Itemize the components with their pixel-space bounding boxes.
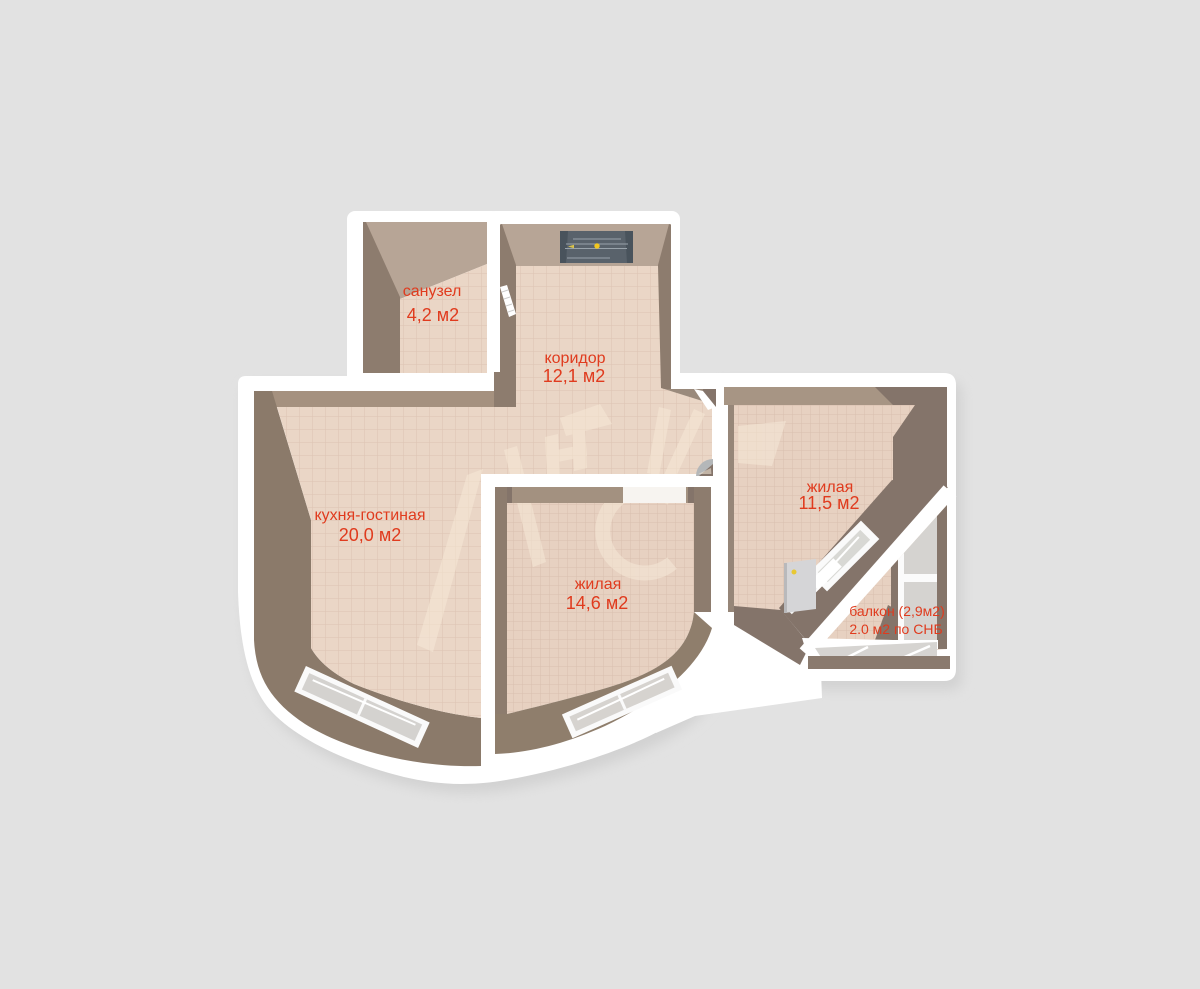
- svg-text:4,2 м2: 4,2 м2: [407, 305, 459, 325]
- svg-text:20,0 м2: 20,0 м2: [339, 525, 401, 545]
- svg-text:11,5 м2: 11,5 м2: [798, 493, 859, 513]
- svg-text:балкон (2,9м2): балкон (2,9м2): [849, 603, 945, 619]
- svg-text:жилая: жилая: [575, 576, 622, 593]
- svg-text:14,6 м2: 14,6 м2: [566, 593, 628, 613]
- svg-text:12,1 м2: 12,1 м2: [543, 366, 605, 386]
- svg-text:коридор: коридор: [544, 350, 605, 367]
- svg-text:санузел: санузел: [403, 283, 462, 300]
- svg-text:2.0 м2 по СНБ: 2.0 м2 по СНБ: [849, 621, 942, 637]
- svg-text:кухня-гостиная: кухня-гостиная: [314, 507, 425, 524]
